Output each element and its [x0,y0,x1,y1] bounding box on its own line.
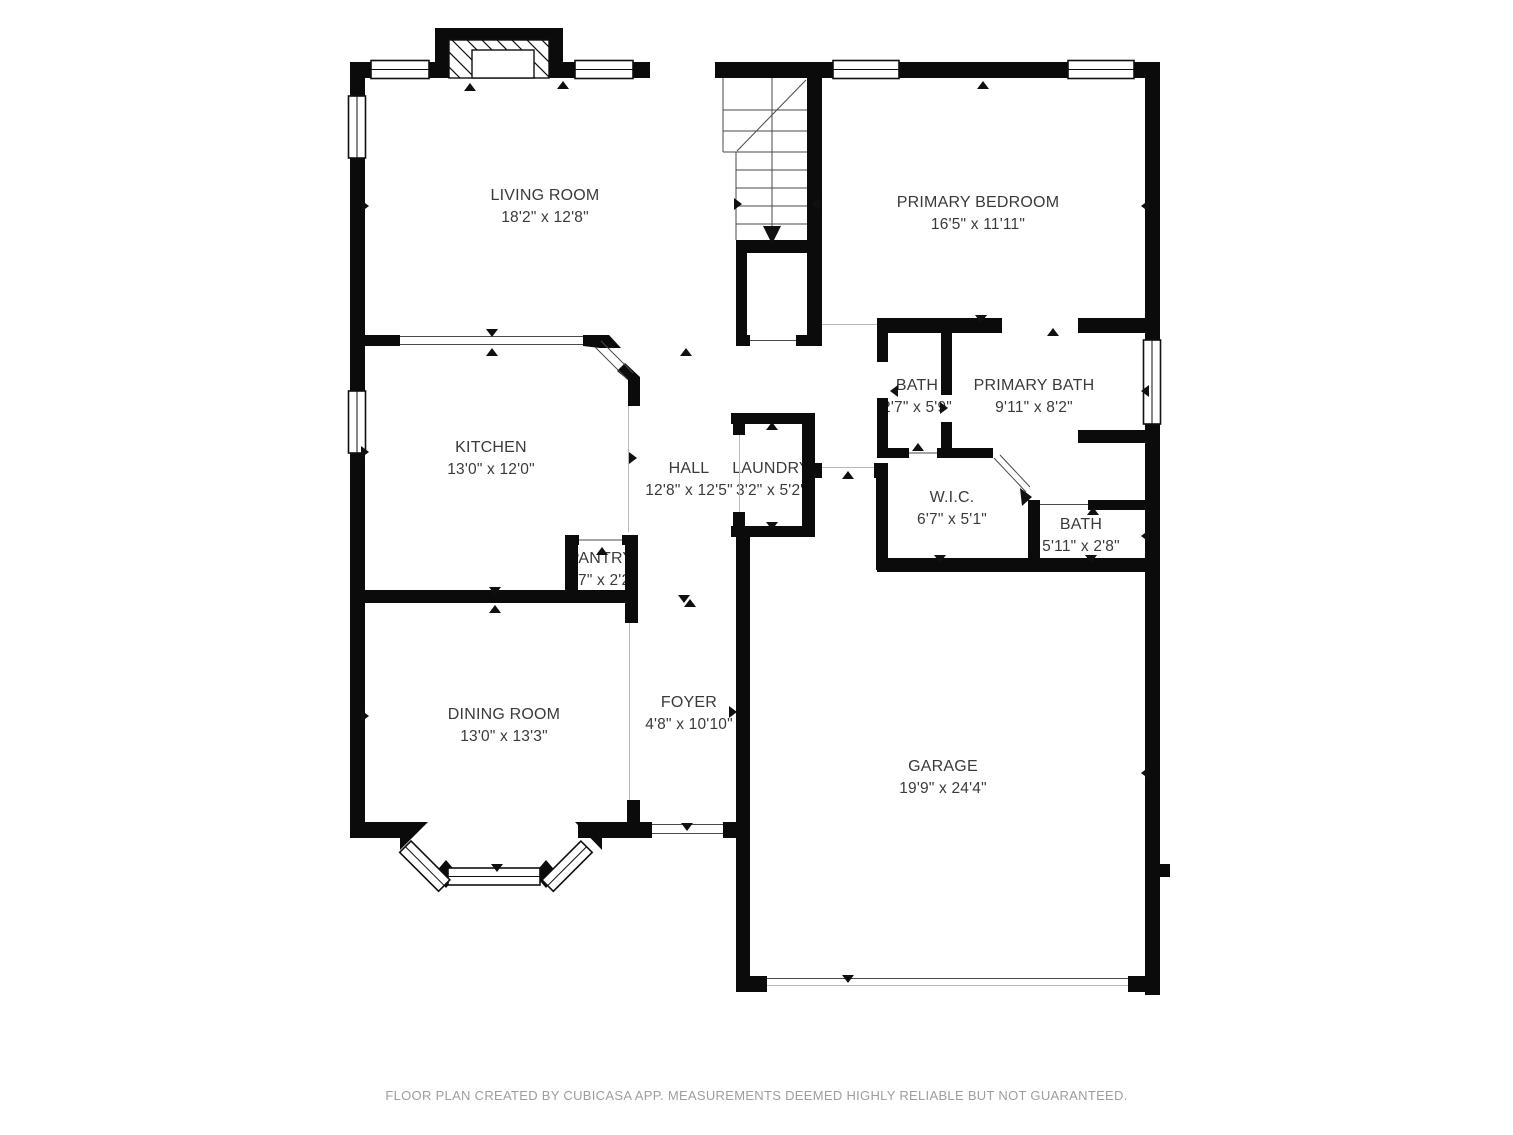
room-dims: 16'5" x 11'11" [897,214,1059,236]
room-name: DINING ROOM [448,704,560,726]
room-dims: 13'0" x 12'0" [447,459,535,481]
room-dims: 12'8" x 12'5" [645,480,733,502]
room-name: FOYER [645,692,733,714]
room-label-dining-room: DINING ROOM13'0" x 13'3" [448,704,560,748]
room-dims: 13'0" x 13'3" [448,726,560,748]
room-label-laundry: LAUNDRY3'2" x 5'2" [732,458,810,502]
room-label-living-room: LIVING ROOM18'2" x 12'8" [491,185,600,229]
room-dims: 9'11" x 8'2" [974,397,1095,419]
room-dims: 6'7" x 5'1" [917,509,987,531]
room-name: LIVING ROOM [491,185,600,207]
room-label-foyer: FOYER4'8" x 10'10" [645,692,733,736]
room-name: KITCHEN [447,437,535,459]
room-dims: 2'7" x 5'9" [882,397,952,419]
room-dims: 19'9" x 24'4" [899,778,987,800]
room-dims: 5'11" x 2'8" [1042,536,1120,558]
room-label-primary-bath: PRIMARY BATH9'11" x 8'2" [974,375,1095,419]
footer-disclaimer: FLOOR PLAN CREATED BY CUBICASA APP. MEAS… [385,1088,1127,1103]
room-name: LAUNDRY [732,458,810,480]
room-dims: 4'8" x 10'10" [645,714,733,736]
room-label-pantry: PANTRY4'7" x 2'2" [566,548,636,592]
room-name: PRIMARY BEDROOM [897,192,1059,214]
room-label-garage: GARAGE19'9" x 24'4" [899,756,987,800]
room-labels-layer: LIVING ROOM18'2" x 12'8" PRIMARY BEDROOM… [0,0,1513,1135]
room-name: GARAGE [899,756,987,778]
room-name: BATH [1042,514,1120,536]
room-name: HALL [645,458,733,480]
room-label-wic: W.I.C.6'7" x 5'1" [917,487,987,531]
room-label-hall: HALL12'8" x 12'5" [645,458,733,502]
room-label-bath: BATH2'7" x 5'9" [882,375,952,419]
room-label-primary-bedroom: PRIMARY BEDROOM16'5" x 11'11" [897,192,1059,236]
room-name: PRIMARY BATH [974,375,1095,397]
room-name: BATH [882,375,952,397]
room-dims: 18'2" x 12'8" [491,207,600,229]
room-dims: 3'2" x 5'2" [732,480,810,502]
floor-plan-page: LIVING ROOM18'2" x 12'8" PRIMARY BEDROOM… [0,0,1513,1135]
room-name: W.I.C. [917,487,987,509]
room-name: PANTRY [566,548,636,570]
room-dims: 4'7" x 2'2" [566,570,636,592]
room-label-kitchen: KITCHEN13'0" x 12'0" [447,437,535,481]
room-label-bath-2: BATH5'11" x 2'8" [1042,514,1120,558]
